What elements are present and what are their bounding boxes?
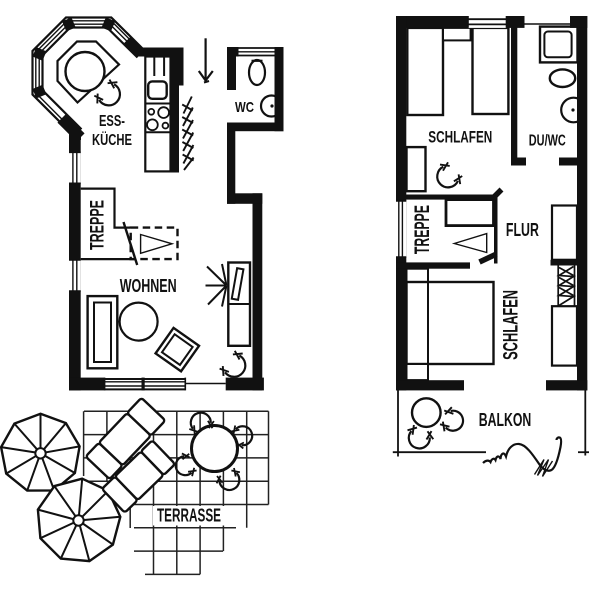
svg-text:SCHLAFEN: SCHLAFEN: [428, 128, 492, 147]
svg-text:TREPPE: TREPPE: [411, 205, 434, 254]
svg-text:SCHLAFEN: SCHLAFEN: [500, 290, 523, 360]
svg-text:WC: WC: [235, 99, 254, 116]
svg-text:KÜCHE: KÜCHE: [92, 130, 132, 149]
svg-text:ESS-: ESS-: [99, 113, 125, 130]
svg-text:TERRASSE: TERRASSE: [157, 506, 221, 526]
svg-text:FLUR: FLUR: [506, 220, 539, 240]
svg-text:WOHNEN: WOHNEN: [120, 276, 177, 296]
svg-text:DU/WC: DU/WC: [529, 133, 566, 150]
svg-text:TREPPE: TREPPE: [88, 200, 109, 250]
svg-text:BALKON: BALKON: [479, 410, 532, 430]
